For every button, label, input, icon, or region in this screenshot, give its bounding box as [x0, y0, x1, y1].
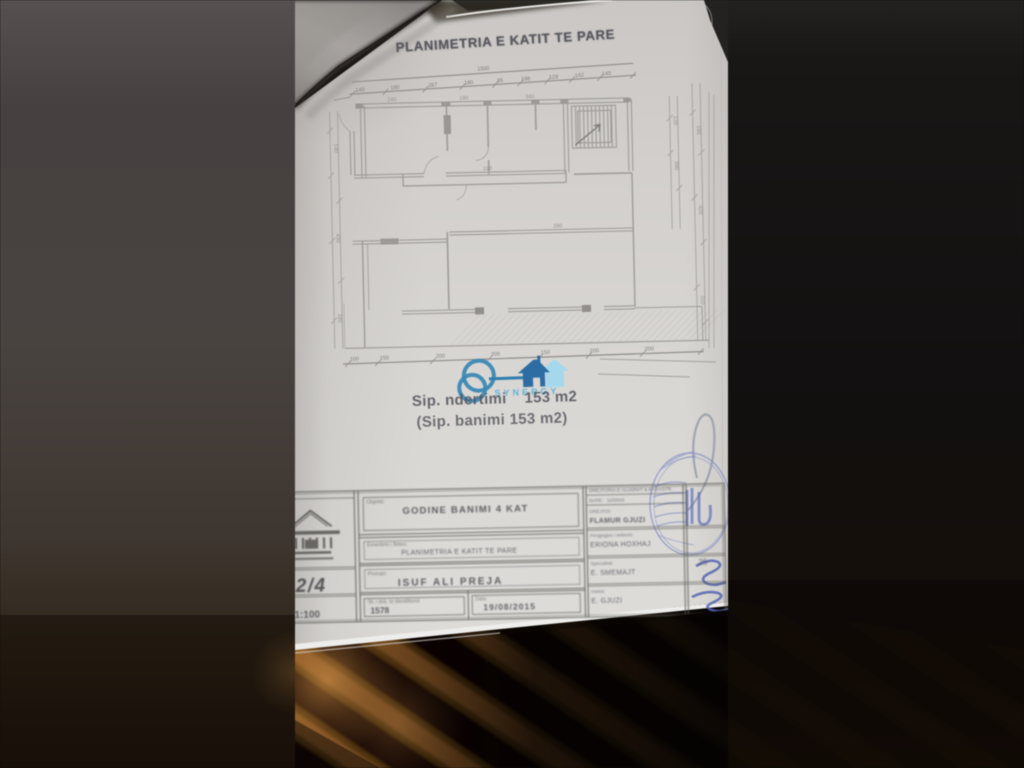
svg-text:190: 190	[390, 85, 400, 92]
svg-text:Specialisti:: Specialisti:	[590, 561, 613, 567]
svg-text:162: 162	[575, 73, 585, 80]
svg-text:ISUF ALI PREJA: ISUF ALI PREJA	[398, 576, 504, 589]
svg-text:Pronari:: Pronari:	[368, 571, 388, 577]
svg-text:140: 140	[602, 71, 612, 78]
svg-text:E. SMEMAJT: E. SMEMAJT	[591, 569, 637, 577]
svg-text:E. GJUZI: E. GJUZI	[591, 597, 622, 605]
svg-text:190: 190	[483, 166, 492, 172]
svg-text:420: 420	[697, 205, 703, 214]
svg-text:200: 200	[645, 346, 654, 352]
svg-text:85: 85	[497, 78, 504, 84]
svg-text:1578: 1578	[370, 605, 389, 615]
svg-text:280: 280	[553, 223, 562, 229]
svg-text:180: 180	[464, 80, 474, 87]
svg-text:DREJTOI:: DREJTOI:	[589, 509, 611, 515]
svg-text:200: 200	[436, 354, 445, 360]
svg-text:Pergjegjes i sektorit:: Pergjegjes i sektorit:	[590, 532, 633, 539]
svg-text:310: 310	[699, 295, 705, 304]
svg-text:19/08/2015: 19/08/2015	[483, 601, 536, 612]
svg-text:180: 180	[336, 313, 342, 322]
svg-text:140: 140	[332, 144, 338, 153]
svg-text:1500: 1500	[477, 66, 490, 73]
svg-text:287: 287	[428, 82, 438, 89]
svg-text:150: 150	[380, 355, 389, 361]
svg-text:FLAMUR GJUZI: FLAMUR GJUZI	[590, 517, 646, 525]
svg-text:Objekti:: Objekti:	[366, 499, 385, 505]
svg-text:340: 340	[525, 94, 534, 100]
svg-text:ERIONA HOXHAJ: ERIONA HOXHAJ	[590, 541, 651, 549]
svg-text:390: 390	[673, 161, 679, 170]
svg-text:150: 150	[541, 350, 550, 356]
svg-text:128: 128	[549, 74, 559, 81]
svg-text:140: 140	[355, 87, 365, 94]
svg-text:200: 200	[491, 352, 500, 358]
svg-text:160: 160	[695, 125, 701, 134]
svg-text:100: 100	[350, 357, 359, 363]
svg-text:25: 25	[698, 558, 708, 567]
svg-text:180: 180	[459, 96, 468, 102]
svg-text:198: 198	[521, 76, 531, 83]
svg-text:430: 430	[334, 234, 340, 243]
svg-text:DATE: 12/2015: DATE: 12/2015	[589, 497, 625, 504]
svg-text:1:100: 1:100	[294, 610, 320, 622]
svg-text:240: 240	[387, 97, 396, 103]
svg-text:120: 120	[672, 116, 678, 125]
svg-text:Emertimi i fletes:: Emertimi i fletes:	[367, 542, 408, 549]
svg-text:200: 200	[590, 348, 599, 354]
svg-text:Hartoi:: Hartoi:	[591, 589, 605, 595]
